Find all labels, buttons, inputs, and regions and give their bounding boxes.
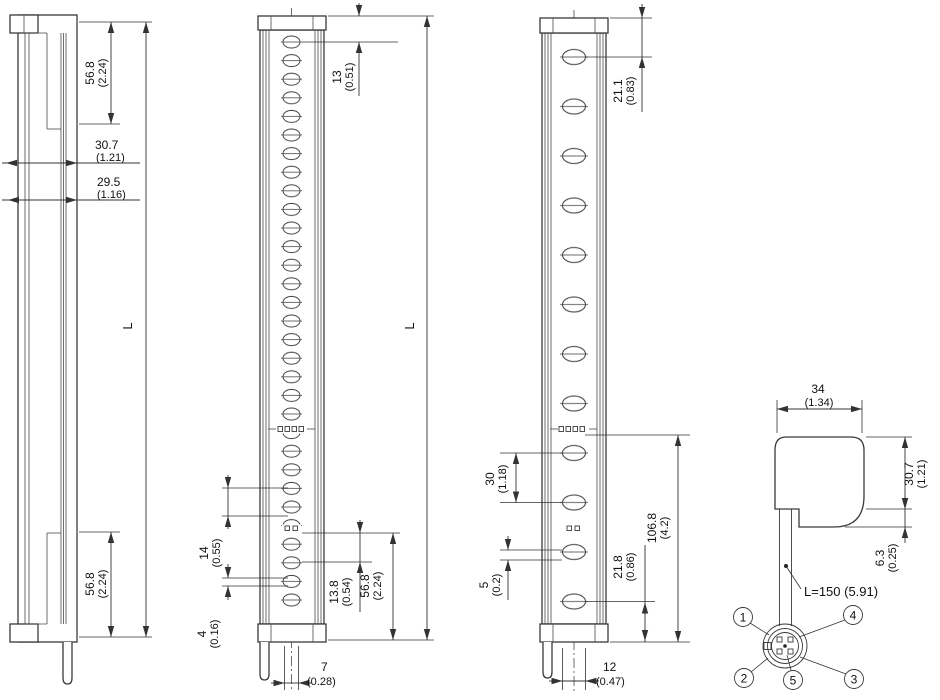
technical-drawing-page: 56.8 (2.24) 30.7 (1.21) 29.5 (1.16) L 56… — [0, 0, 940, 700]
dimension-cable-offset-coarse: 12 (0.47) — [549, 648, 625, 690]
beam-lens-array — [277, 33, 307, 610]
view-side-profile: 56.8 (2.24) 30.7 (1.21) 29.5 (1.16) L 56… — [2, 15, 152, 684]
section-body-outline — [775, 437, 864, 527]
front-fine-top-cap — [258, 16, 326, 30]
dim-label: 21.8 — [611, 555, 625, 579]
pin-callout-3: 3 — [845, 670, 864, 689]
dim-label: 21.1 — [611, 79, 625, 103]
pin-callout-2: 2 — [735, 669, 754, 688]
dim-label-inch: (1.21) — [96, 152, 125, 164]
side-cable — [63, 642, 72, 684]
dim-label: 30.7 — [95, 138, 119, 152]
dim-label: L — [402, 322, 417, 329]
front-coarse-bottom-cap — [540, 624, 608, 642]
connector-pin — [788, 649, 793, 654]
view-front-narrow-pitch: 13 (0.51) L 14 (0.55) 4 (0.16) — [195, 3, 434, 692]
dim-label: 5 — [477, 581, 491, 588]
dim-label-inch: (0.83) — [625, 77, 637, 106]
dim-label: 13 — [330, 70, 344, 84]
connector-center-pin — [783, 644, 787, 648]
front-fine-bottom-cap — [258, 624, 326, 642]
dim-label-inch: (0.16) — [209, 620, 221, 649]
dim-label: 4 — [195, 630, 209, 637]
dim-label-inch: (1.18) — [497, 465, 509, 494]
pin-number: 5 — [790, 674, 797, 688]
pin-number: 3 — [851, 673, 858, 687]
cable-length-label: L=150 (5.91) — [804, 584, 878, 599]
dimension-overall-length-side: L — [79, 22, 152, 637]
dim-label: 30.7 — [902, 462, 916, 486]
dim-label-inch: (2.24) — [97, 570, 109, 599]
dim-label-inch: (2.24) — [372, 572, 384, 601]
dim-label: 7 — [321, 660, 328, 674]
dim-label-inch: (0.86) — [625, 553, 637, 582]
connector-pin — [777, 649, 782, 654]
view-cross-section: 34 (1.34) L=150 (5.91) 30.7 (1.21) 6.3 (… — [734, 382, 929, 690]
pin-callout-4: 4 — [844, 606, 863, 625]
beam-lens-array — [557, 32, 591, 626]
view-front-wide-pitch: 21.1 (0.83) 30 (1.18) 5 (0.2) 21.8 (0.86… — [477, 4, 690, 692]
dim-label-inch: (1.34) — [805, 397, 834, 409]
dim-label: 6.3 — [873, 549, 887, 566]
connector-pin — [788, 637, 793, 642]
cable-leader-line — [786, 566, 801, 589]
connector-pinout: 1 4 2 5 3 — [734, 606, 864, 690]
pin-number: 1 — [740, 611, 747, 625]
dim-label: 56.8 — [83, 572, 97, 596]
dim-label-inch: (0.54) — [341, 578, 353, 607]
dim-label: 30 — [483, 472, 497, 486]
dim-label-inch: (1.21) — [916, 460, 928, 489]
dim-label-inch: (0.47) — [596, 676, 625, 688]
dim-label: 12 — [603, 660, 617, 674]
pin-callout-1: 1 — [734, 608, 753, 627]
dimension-top-bracket: 56.8 (2.24) — [79, 22, 152, 124]
dim-label-inch: (2.24) — [97, 59, 109, 88]
dim-label-inch: (1.16) — [97, 189, 126, 201]
dim-label: 106.8 — [645, 513, 659, 543]
front-fine-cable — [260, 642, 269, 680]
dim-label: L — [120, 322, 135, 329]
dimension-section-width: 34 (1.34) — [777, 382, 862, 433]
dim-label-inch: (0.51) — [344, 63, 356, 92]
side-body-outline — [18, 15, 77, 642]
front-coarse-top-cap — [540, 18, 608, 33]
dim-label-inch: (0.2) — [491, 574, 503, 597]
technical-drawing: 56.8 (2.24) 30.7 (1.21) 29.5 (1.16) L 56… — [0, 0, 940, 700]
dim-label: 34 — [811, 382, 825, 396]
dim-label-inch: (4.2) — [659, 517, 671, 540]
dimension-section-height: 30.7 (1.21) — [866, 437, 928, 509]
mounting-bracket-bottom — [10, 624, 38, 642]
dim-label-inch: (0.55) — [211, 539, 223, 568]
pin-number: 4 — [850, 609, 857, 623]
dim-label: 56.8 — [358, 574, 372, 598]
dim-label: 13.8 — [327, 580, 341, 604]
dim-label-inch: (0.25) — [887, 544, 899, 573]
dim-label: 14 — [197, 546, 211, 560]
dim-label-inch: (0.28) — [307, 676, 336, 688]
dimension-cable-offset-front: 7 (0.28) — [271, 646, 336, 690]
pin-number: 2 — [741, 672, 748, 686]
dimension-overall-length-front: L — [328, 16, 434, 640]
dimension-bottom-bracket: 56.8 (2.24) — [79, 532, 120, 637]
dimension-bottom-bracket-front: 56.8 (2.24) — [358, 533, 393, 640]
pin-callout-5: 5 — [784, 671, 803, 690]
front-coarse-cable — [543, 642, 552, 678]
dim-label: 29.5 — [97, 175, 121, 189]
dim-label: 56.8 — [83, 61, 97, 85]
connector-pin — [777, 637, 782, 642]
